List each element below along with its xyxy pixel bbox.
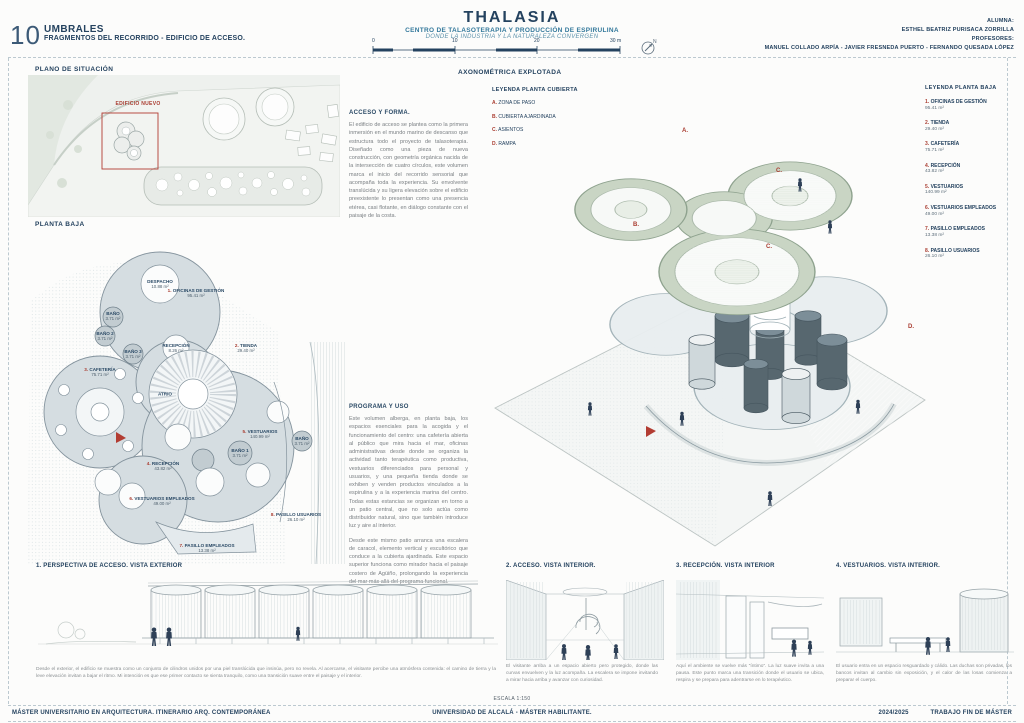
profesores-label: PROFESORES:: [674, 35, 1014, 44]
footer-separator: [8, 705, 1016, 706]
room-label: 4. RECEPCIÓN43.82 m²: [147, 461, 179, 471]
page-number: 10: [10, 20, 41, 51]
legend-item: 8. PASILLO USUARIOS26.10 m²: [925, 248, 1005, 261]
view-caption-3: Aquí el ambiente se vuelve más “íntimo”.…: [676, 664, 824, 685]
axonometric-drawing: A. C. B. C. D.: [470, 78, 930, 560]
series-title: UMBRALES: [44, 24, 245, 35]
room-label: BAÑO 13.71 m²: [231, 448, 248, 458]
footer-center: UNIVERSIDAD DE ALCALÁ - MÁSTER HABILITAN…: [0, 710, 1024, 716]
view-caption-1: Desde el exterior, el edificio se muestr…: [36, 667, 496, 681]
legend-item: 5. VESTUARIOS140.99 m²: [925, 184, 1005, 197]
svg-text:C.: C.: [776, 168, 782, 174]
header-separator: [8, 57, 1016, 58]
programa-block: PROGRAMA Y USO Este volumen alberga, en …: [349, 404, 468, 586]
header-left: UMBRALES FRAGMENTOS DEL RECORRIDO - EDIF…: [44, 24, 245, 42]
leyenda-planta-baja-title: LEYENDA PLANTA BAJA: [925, 85, 1005, 91]
svg-text:B.: B.: [633, 222, 639, 228]
room-label: BAÑO3.71 m²: [106, 311, 121, 321]
svg-text:C.: C.: [766, 244, 772, 250]
project-subtitle: CENTRO DE TALASOTERAPIA Y PRODUCCIÓN DE …: [362, 27, 662, 34]
series-subtitle: FRAGMENTOS DEL RECORRIDO - EDIFICIO DE A…: [44, 35, 245, 42]
view-2-drawing: [506, 580, 664, 660]
view-title-4: 4. VESTUARIOS. VISTA INTERIOR.: [836, 563, 940, 569]
view-title-2: 2. ACCESO. VISTA INTERIOR.: [506, 563, 596, 569]
site-plan-drawing: [28, 75, 340, 217]
project-title: THALASIA: [362, 9, 662, 27]
footer-project: TRABAJO FIN DE MÁSTER: [930, 710, 1012, 716]
acceso-title: ACCESO Y FORMA.: [349, 110, 468, 116]
section-title-situacion: PLANO DE SITUACIÓN: [35, 66, 113, 73]
programa-body-1: Este volumen alberga, en planta baja, lo…: [349, 415, 468, 531]
scale-tick: 0: [372, 38, 375, 44]
footer-year: 2024/2025: [879, 710, 909, 716]
section-title-planta-baja: PLANTA BAJA: [35, 221, 85, 228]
room-label: 8. PASILLO USUARIOS26.10 m²: [271, 512, 321, 522]
legend-item: 1. OFICINAS DE GESTIÓN95.41 m²: [925, 99, 1005, 112]
legend-item: 3. CAFETERÍA75.71 m²: [925, 141, 1005, 154]
view-1-drawing: [36, 574, 498, 664]
credits: ALUMNA: ESTHEL BEATRIZ PURISACA ZORRILLA…: [674, 17, 1014, 53]
view-title-3: 3. RECEPCIÓN. VISTA INTERIOR: [676, 563, 775, 569]
new-building-label: EDIFICIO NUEVO: [115, 101, 160, 107]
north-icon: N: [640, 38, 658, 56]
scale-tick: 20: [534, 38, 540, 44]
view-caption-4: El usuario entra en un espacio resguarda…: [836, 664, 1012, 685]
programa-title: PROGRAMA Y USO: [349, 404, 468, 410]
acceso-body: El edificio de acceso se plantea como la…: [349, 121, 468, 220]
scale-tick: 10: [452, 38, 458, 44]
svg-text:A.: A.: [682, 128, 688, 134]
left-frame-line: [8, 58, 9, 704]
legend-item: 6. VESTUARIOS EMPLEADOS49.00 m²: [925, 205, 1005, 218]
view-4-drawing: [836, 580, 1014, 660]
room-label: BAÑO3.71 m²: [295, 436, 310, 446]
room-label: ATRIO: [158, 391, 172, 396]
room-label: RECEPCIÓN8.26 m²: [162, 343, 189, 353]
legend-item: 4. RECEPCIÓN43.82 m²: [925, 163, 1005, 176]
room-label: 7. PASILLO EMPLEADOS13.38 m²: [179, 543, 234, 553]
bottom-edge-line: [8, 721, 1016, 722]
section-title-axonometrica: AXONOMÉTRICA EXPLOTADA: [458, 69, 561, 76]
view-title-1: 1. PERSPECTIVA DE ACCESO. VISTA EXTERIOR: [36, 563, 182, 569]
header-center: THALASIA CENTRO DE TALASOTERAPIA Y PRODU…: [362, 9, 662, 40]
view-caption-2: El visitante arriba a un espacio abierto…: [506, 664, 658, 685]
alumna-name: ESTHEL BEATRIZ PURISACA ZORRILLA: [674, 26, 1014, 35]
room-label: BAÑO 33.71 m²: [124, 349, 141, 359]
scale-note: ESCALA 1:150: [0, 696, 1024, 702]
presentation-sheet: 10 UMBRALES FRAGMENTOS DEL RECORRIDO - E…: [0, 0, 1024, 723]
room-label: 6. VESTUARIOS EMPLEADOS49.00 m²: [129, 496, 194, 506]
legend-item: 2. TIENDA29.40 m²: [925, 120, 1005, 133]
room-label: 1. OFICINAS DE GESTIÓN95.41 m²: [168, 288, 225, 298]
legend-item: 7. PASILLO EMPLEADOS13.38 m²: [925, 226, 1005, 239]
scale-bar-graphic: [372, 46, 632, 54]
acceso-block: ACCESO Y FORMA. El edificio de acceso se…: [349, 110, 468, 220]
room-label: 5. VESTUARIOS140.99 m²: [243, 429, 278, 439]
room-label: BAÑO 23.71 m²: [96, 331, 113, 341]
footer-right: 2024/2025 TRABAJO FIN DE MÁSTER: [879, 710, 1012, 716]
scale-bar: 0 10 20 30 m: [372, 38, 632, 54]
leyenda-planta-baja: LEYENDA PLANTA BAJA 1. OFICINAS DE GESTI…: [925, 85, 1005, 269]
scale-tick: 30 m: [610, 38, 621, 44]
view-3-drawing: [676, 580, 824, 660]
svg-text:N: N: [653, 39, 657, 45]
room-label: 3. CAFETERÍA75.71 m²: [84, 367, 115, 377]
alumna-label: ALUMNA:: [674, 17, 1014, 26]
room-label: 2. TIENDA29.40 m²: [235, 343, 257, 353]
svg-text:D.: D.: [908, 324, 914, 330]
profesores-names: MANUEL COLLADO ARPÍA - JAVIER FRESNEDA P…: [674, 44, 1014, 53]
